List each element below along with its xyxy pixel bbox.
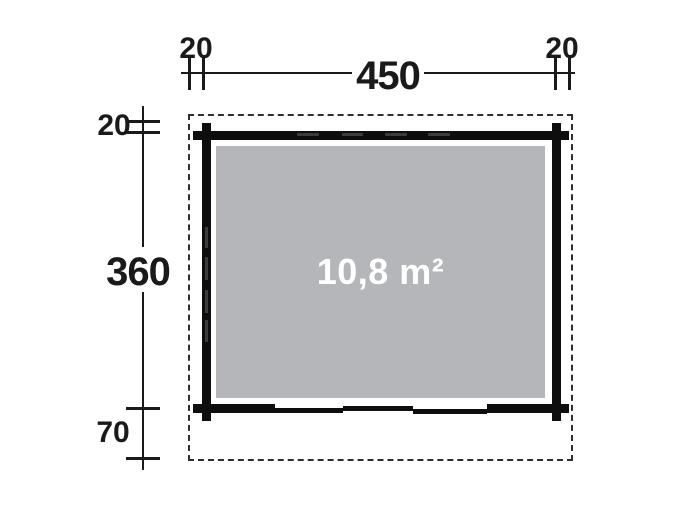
dim-label-top-left-offset: 20 <box>166 33 226 65</box>
wall-joint-mark <box>297 133 319 136</box>
dim-tick <box>126 407 160 410</box>
dim-label-height: 360 <box>86 251 190 293</box>
area-label: 10,8 m² <box>216 146 545 398</box>
wall-right <box>552 123 561 421</box>
door-threshold-right <box>413 409 487 414</box>
wall-joint-mark <box>342 133 363 136</box>
wall-bottom-left <box>193 404 275 413</box>
dim-label-left-bottom-offset: 70 <box>83 417 143 449</box>
floor-plan-diagram: 10,8 m² 20 450 20 20 360 70 <box>0 0 700 525</box>
wall-top <box>193 131 569 140</box>
dim-label-top-right-offset: 20 <box>532 33 592 65</box>
wall-joint-mark <box>205 227 208 248</box>
wall-joint-mark <box>205 257 208 280</box>
door-threshold-left <box>275 408 343 413</box>
dim-label-width: 450 <box>336 55 440 97</box>
dim-label-left-top-offset: 20 <box>84 110 144 142</box>
wall-joint-mark <box>428 133 450 136</box>
wall-bottom-right <box>487 404 569 413</box>
dim-line-top-left-segment <box>181 72 352 74</box>
door-threshold-center <box>343 406 413 411</box>
dim-tick <box>126 457 160 460</box>
wall-joint-mark <box>205 290 208 313</box>
wall-joint-mark <box>385 133 407 136</box>
wall-joint-mark <box>205 320 208 342</box>
dim-line-top-right-segment <box>424 72 575 74</box>
